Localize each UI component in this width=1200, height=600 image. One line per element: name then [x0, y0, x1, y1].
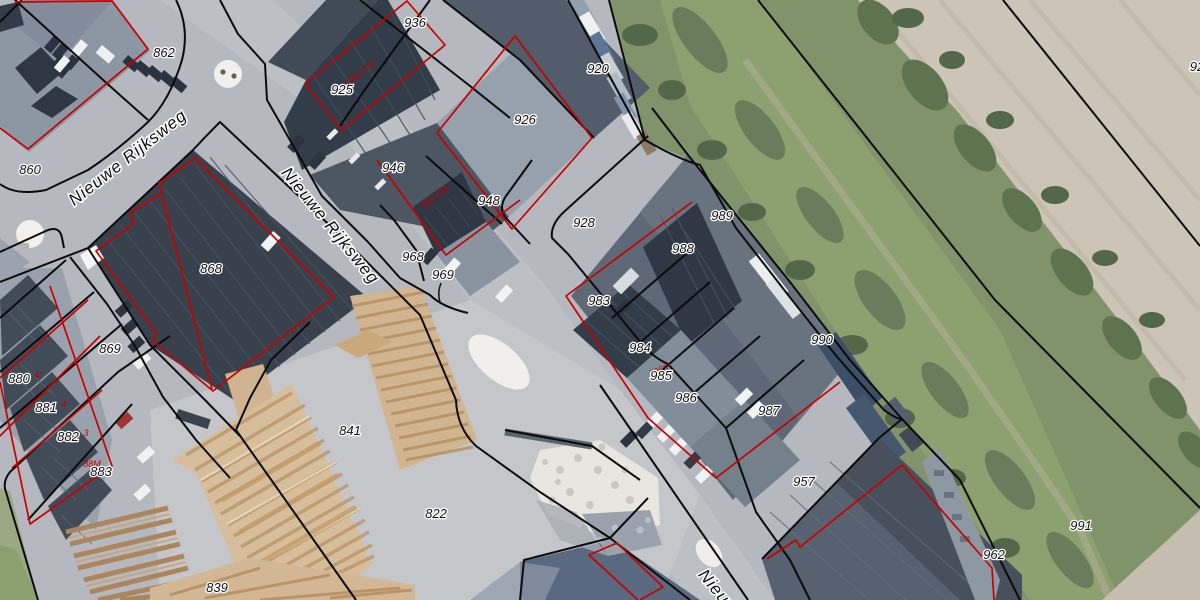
- svg-text:841: 841: [339, 423, 361, 438]
- svg-text:957: 957: [793, 474, 815, 489]
- svg-text:988: 988: [672, 241, 694, 256]
- svg-text:983: 983: [588, 293, 610, 308]
- svg-text:990: 990: [811, 332, 833, 347]
- svg-text:881: 881: [35, 400, 57, 415]
- svg-text:3: 3: [83, 428, 88, 438]
- svg-text:4*: 4*: [34, 370, 43, 380]
- svg-text:862: 862: [153, 45, 175, 60]
- svg-text:946: 946: [382, 160, 404, 175]
- svg-text:4: 4: [61, 399, 66, 409]
- svg-text:860: 860: [19, 162, 41, 177]
- svg-text:928: 928: [573, 215, 595, 230]
- svg-text:868: 868: [200, 261, 222, 276]
- svg-text:968: 968: [402, 249, 424, 264]
- svg-text:839: 839: [206, 580, 228, 595]
- svg-text:986: 986: [675, 390, 697, 405]
- svg-text:936: 936: [404, 15, 426, 30]
- svg-text:880: 880: [8, 371, 30, 386]
- svg-text:991: 991: [1070, 518, 1092, 533]
- svg-text:984: 984: [629, 340, 651, 355]
- svg-text:883: 883: [90, 464, 112, 479]
- svg-text:920: 920: [587, 61, 609, 76]
- svg-text:969: 969: [432, 267, 454, 282]
- svg-text:962: 962: [983, 547, 1005, 562]
- svg-text:882: 882: [57, 429, 79, 444]
- svg-text:869: 869: [99, 341, 121, 356]
- svg-text:926: 926: [514, 112, 536, 127]
- svg-text:822: 822: [425, 506, 447, 521]
- svg-text:987: 987: [758, 403, 780, 418]
- svg-text:948: 948: [478, 193, 500, 208]
- svg-text:92: 92: [1190, 59, 1200, 74]
- svg-text:989: 989: [711, 208, 733, 223]
- svg-text:985: 985: [650, 368, 672, 383]
